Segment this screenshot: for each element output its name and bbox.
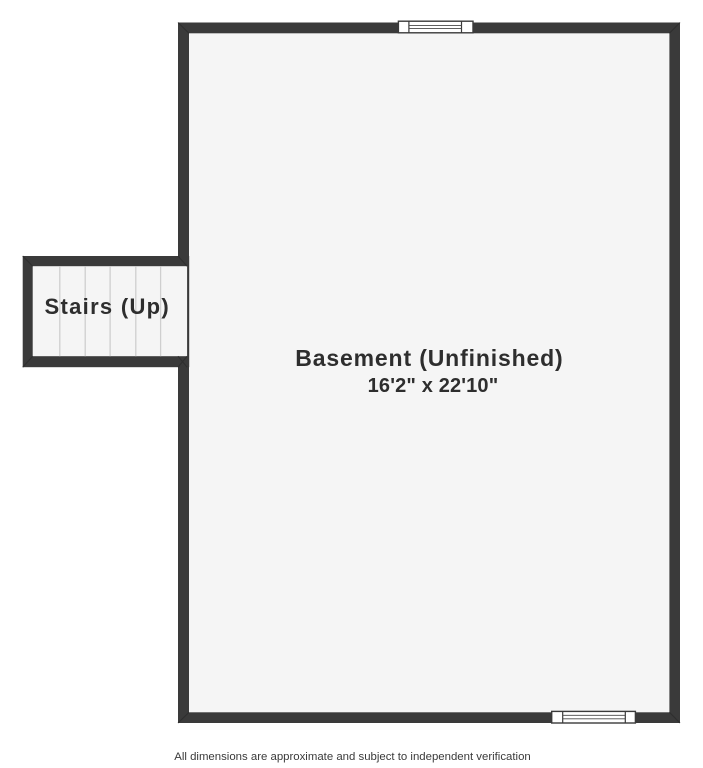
- svg-text:Basement (Unfinished): Basement (Unfinished): [295, 345, 563, 371]
- svg-text:16'2" x 22'10": 16'2" x 22'10": [368, 375, 499, 397]
- svg-text:Stairs (Up): Stairs (Up): [45, 294, 171, 319]
- svg-text:All dimensions are approximate: All dimensions are approximate and subje…: [174, 751, 531, 763]
